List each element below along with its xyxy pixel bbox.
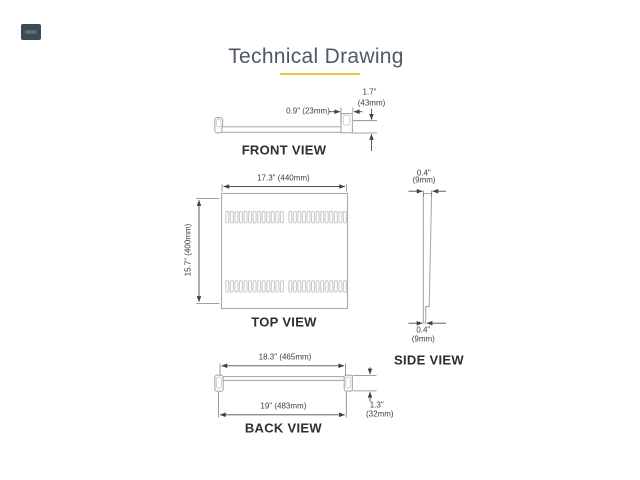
- side-bottom-dimension-mm: (9mm): [412, 335, 435, 344]
- front-shelf-bar: [222, 127, 345, 133]
- vent-slot-group: [289, 211, 347, 223]
- vent-slot-group: [289, 281, 347, 293]
- side-view-label: SIDE VIEW: [394, 352, 464, 367]
- back-bar: [223, 377, 344, 381]
- front-lip-dimension: 0.9" (23mm): [286, 108, 330, 117]
- top-view-label: TOP VIEW: [251, 314, 317, 329]
- front-view-label: FRONT VIEW: [242, 142, 327, 157]
- back-inner-width-dimension: 18.3" (465mm): [259, 354, 312, 363]
- technical-drawing-page: Technical Drawing: [0, 0, 640, 480]
- top-width-dimension: 17.3" (440mm): [257, 174, 310, 183]
- top-view-drawing: [196, 184, 347, 308]
- back-height-dimension-mm: (32mm): [366, 410, 394, 419]
- vent-slot-group: [226, 211, 284, 223]
- side-profile: [423, 194, 431, 323]
- vent-slot-group: [226, 281, 284, 293]
- back-outer-width-dimension: 19" (483mm): [260, 402, 306, 411]
- side-top-dimension-mm: (9mm): [412, 177, 435, 186]
- front-height-dimension-in: 1.7": [363, 88, 377, 97]
- front-right-ear: [341, 114, 352, 133]
- drawing-linework: [0, 0, 640, 480]
- side-view-drawing: [409, 191, 447, 324]
- top-depth-dimension: 15.7" (400mm): [185, 224, 194, 277]
- back-view-label: BACK VIEW: [245, 421, 322, 436]
- front-height-dimension-mm: (43mm): [358, 99, 386, 108]
